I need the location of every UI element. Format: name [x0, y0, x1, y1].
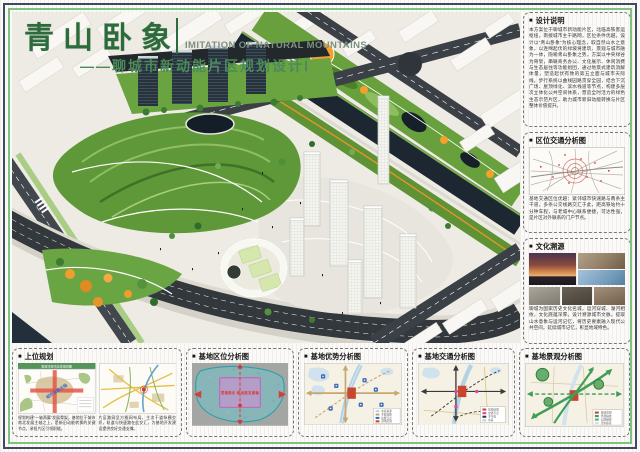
- masterplan-map: 聊城市城市总体规划图 城市发展主轴: [18, 363, 96, 414]
- landscape-legend: 基地范围 景观轴线 公园绿地 滨水廊道: [593, 410, 622, 426]
- site-advantage-map: 水系资源 主要道路 功能节点 基地范围: [304, 363, 402, 425]
- masterplan-aerial-render: 青山卧象 IMITATION OF NATURAL MOUNTAINS ——聊城…: [12, 12, 520, 343]
- traffic-analysis-caption: 基地交通区位优越：紧邻城市快速路与两条主干道，多条公交线路交汇于此，距高铁站约十…: [529, 196, 625, 221]
- culture-title: 文化溯源: [536, 243, 565, 251]
- legend-label: 基地范围: [381, 419, 392, 423]
- square-bullet-icon: ■: [192, 354, 196, 360]
- photo-sunset-skyline: [529, 253, 576, 285]
- title-block: 青山卧象 IMITATION OF NATURAL MOUNTAINS ——聊城…: [24, 18, 367, 76]
- legend-label: 交通节点: [488, 411, 499, 415]
- photo-ruins: [562, 287, 593, 305]
- site-location-title: 基地区位分析图: [199, 353, 249, 361]
- square-bullet-icon: ■: [525, 354, 529, 360]
- panel-site-advantage: ■ 基地优势分析图: [298, 348, 408, 437]
- square-bullet-icon: ■: [529, 244, 533, 250]
- design-notes-title: 设计说明: [536, 17, 565, 25]
- photo-rocks: [529, 287, 560, 305]
- round-building: [221, 239, 287, 297]
- panel-traffic-analysis: ■ 区位交通分析图: [523, 132, 631, 233]
- site-advantage-title: 基地优势分析图: [311, 353, 361, 361]
- title-divider-bar: [176, 18, 178, 54]
- region-traffic-map: [529, 147, 625, 195]
- site-landscape-title: 基地景观分析图: [532, 353, 582, 361]
- panel-upper-plan: ■ 上位规划 聊城市城市总体规划图: [12, 348, 182, 437]
- poster-subtitle-en: IMITATION OF NATURAL MOUNTAINS: [185, 40, 367, 55]
- photo-group: [594, 287, 625, 305]
- square-bullet-icon: ■: [529, 138, 533, 144]
- legend-label: 景观轴线: [601, 414, 612, 418]
- panel-design-notes: ■ 设计说明 本方案位于聊城市新动能片区，北临高铁客运枢纽，南接城市主干路网，区…: [523, 12, 631, 127]
- masterplan-map-banner: 聊城市城市总体规划图: [42, 363, 72, 368]
- legend-label: 水系资源: [381, 409, 392, 413]
- square-bullet-icon: ■: [18, 354, 22, 360]
- site-traffic-title: 基地交通分析图: [425, 353, 475, 361]
- legend-label: 滨水廊道: [601, 421, 612, 425]
- panel-site-landscape: ■ 基地景观分析图: [519, 348, 630, 437]
- poster-subtitle-zh: ——聊城市新动能片区规划设计Ⅰ: [80, 56, 367, 76]
- panel-site-location: ■ 基地区位分析图: [186, 348, 294, 437]
- panel-culture: ■ 文化溯源 聊城为国家历史文化名城，运河穿城、湖河相依，文化底蕴深厚。设计溯源…: [523, 238, 631, 344]
- photo-historic-sepia: [578, 253, 625, 269]
- sidebar: ■ 设计说明 本方案位于聊城市新动能片区，北临高铁客运枢纽，南接城市主干路网，区…: [523, 12, 631, 344]
- design-notes-body: 本方案位于聊城市新动能片区，北临高铁客运枢纽，南接城市主干路网，区位条件优越。设…: [529, 27, 625, 109]
- square-bullet-icon: ■: [529, 18, 533, 24]
- poster-title: 青山卧象: [24, 22, 180, 55]
- legend-label: 基地范围: [488, 407, 499, 411]
- road-network-map: [99, 363, 177, 414]
- site-traffic-map: 基地范围 交通节点 主干道 水系: [418, 363, 509, 426]
- legend-label: 公园绿地: [601, 417, 612, 421]
- upper-plan-title: 上位规划: [25, 353, 54, 361]
- traffic-legend: 基地范围 交通节点 主干道 水系: [481, 407, 506, 423]
- legend-label: 主干道: [488, 415, 496, 419]
- design-poster: 青山卧象 IMITATION OF NATURAL MOUNTAINS ——聊城…: [0, 0, 640, 452]
- site-location-map: 贯通南北·新动能发展轴: [192, 363, 288, 426]
- legend-label: 功能节点: [381, 416, 392, 420]
- advantage-legend: 水系资源 主要道路 功能节点 基地范围: [374, 408, 400, 423]
- upper-plan-caption-2: 片区路网呈方格网布局，主次干道纵横交织，轨道与快速路在此交汇，为基地开发建设提供…: [99, 415, 177, 431]
- legend-label: 水系: [488, 418, 494, 422]
- panel-site-traffic: ■ 基地交通分析图: [412, 348, 515, 437]
- square-bullet-icon: ■: [304, 354, 308, 360]
- legend-label: 基地范围: [601, 410, 612, 414]
- bottom-analysis-row: ■ 上位规划 聊城市城市总体规划图: [12, 348, 630, 437]
- square-bullet-icon: ■: [418, 354, 422, 360]
- traffic-analysis-title: 区位交通分析图: [536, 137, 586, 145]
- site-landscape-map: 基地范围 景观轴线 公园绿地 滨水廊道: [525, 363, 624, 427]
- culture-caption: 聊城为国家历史文化名城，运河穿城、湖河相依，文化底蕴深厚。设计溯源城市文脉，提取…: [529, 306, 625, 331]
- upper-plan-caption-1: 规划构建“一轴两翼”发展骨架，基地位于城市南北发展主轴之上，是新旧动能转换的关键…: [18, 415, 96, 431]
- legend-label: 主要道路: [381, 412, 392, 416]
- photo-city-aerial: [578, 270, 625, 285]
- site-axis-label: 贯通南北·新动能发展轴: [221, 390, 260, 395]
- culture-photo-collage: [529, 253, 625, 305]
